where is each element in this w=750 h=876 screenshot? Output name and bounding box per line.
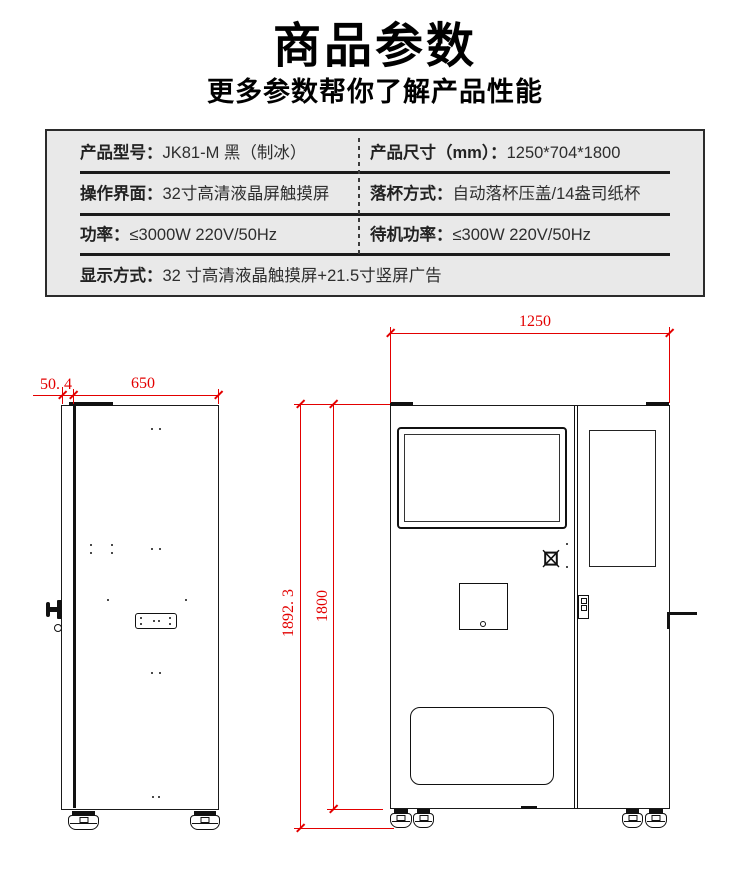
spec-table: 产品型号：JK81-M 黑（制冰） 产品尺寸（mm）：1250*704*1800…: [45, 129, 705, 297]
dispense-nozzle: [480, 621, 486, 627]
page-subtitle: 更多参数帮你了解产品性能: [0, 70, 750, 109]
base-notch: [521, 806, 537, 809]
spec-cup-drop: 落杯方式：自动落杯压盖/14盎司纸杯: [370, 180, 640, 204]
spec-value: 32 寸高清液晶触摸屏+21.5寸竖屏广告: [163, 267, 442, 285]
spec-value: 自动落杯压盖/14盎司纸杯: [453, 185, 641, 203]
row-divider: [80, 213, 670, 216]
column-divider-dashed: [358, 138, 360, 255]
screw-dot: [153, 620, 155, 622]
table-row: 功率：≤3000W 220V/50Hz 待机功率：≤300W 220V/50Hz: [47, 213, 703, 253]
product-parameters-page: 商品参数 更多参数帮你了解产品性能 产品型号：JK81-M 黑（制冰） 产品尺寸…: [0, 0, 750, 876]
table-row: 显示方式：32 寸高清液晶触摸屏+21.5寸竖屏广告: [47, 253, 703, 295]
dim-overall-height: 1892. 3: [281, 578, 297, 648]
front-top-cap-right: [646, 402, 669, 406]
side-cabinet-outline: [61, 405, 219, 810]
dimension-line: [300, 404, 301, 828]
spec-display: 显示方式：32 寸高清液晶触摸屏+21.5寸竖屏广告: [80, 262, 442, 286]
screw-dot: [169, 623, 171, 625]
side-handle-plate: [135, 613, 177, 629]
spec-label: 功率：: [80, 226, 130, 244]
spec-label: 落杯方式：: [370, 185, 453, 203]
side-door-edge-line: [73, 406, 76, 808]
front-top-cap-left: [390, 402, 413, 406]
extension-line: [390, 327, 391, 403]
spec-label: 显示方式：: [80, 267, 163, 285]
dimension-end-line: [294, 828, 394, 829]
page-title: 商品参数: [0, 6, 750, 76]
dimension-line: [333, 404, 334, 809]
door-lock-knob: [54, 624, 62, 632]
payment-module-icon: [542, 549, 560, 568]
caster-wheel: [413, 809, 434, 828]
caster-wheel: [645, 809, 667, 828]
table-row: 产品型号：JK81-M 黑（制冰） 产品尺寸（mm）：1250*704*1800: [47, 131, 703, 171]
spec-value: ≤300W 220V/50Hz: [453, 226, 591, 244]
screw-dot: [169, 617, 171, 619]
dispense-window: [459, 583, 508, 630]
extension-line: [294, 404, 390, 405]
screw-dot: [158, 620, 160, 622]
caster-wheel: [622, 809, 643, 828]
extension-line: [669, 327, 670, 403]
spec-value: 32寸高清液晶屏触摸屏: [163, 185, 330, 203]
spec-model: 产品型号：JK81-M 黑（制冰）: [80, 139, 370, 163]
caster-wheel: [190, 811, 220, 830]
spec-label: 产品尺寸（mm）：: [370, 144, 507, 162]
spec-label: 待机功率：: [370, 226, 453, 244]
dim-overall-width: 1250: [505, 314, 565, 330]
dim-body-depth: 650: [131, 376, 155, 392]
vertical-ad-screen: [589, 430, 656, 567]
right-handle-bar: [669, 612, 697, 615]
dim-door-offset: 50. 4: [40, 377, 72, 393]
main-screen-inner-bezel: [404, 434, 560, 522]
dimension-end-line: [327, 809, 383, 810]
side-top-cap: [69, 402, 113, 406]
door-handle-bar: [46, 602, 50, 617]
row-divider: [80, 253, 670, 256]
door-handle-stem: [49, 607, 58, 612]
caster-wheel: [68, 811, 99, 830]
spec-value: JK81-M 黑（制冰）: [163, 144, 307, 162]
spec-label: 操作界面：: [80, 185, 163, 203]
screw-dot: [140, 617, 142, 619]
caster-wheel: [390, 809, 412, 828]
table-row: 操作界面：32寸高清液晶屏触摸屏 落杯方式：自动落杯压盖/14盎司纸杯: [47, 171, 703, 213]
pickup-door: [410, 707, 554, 785]
dim-cabinet-height: 1800: [315, 582, 331, 630]
spec-standby-power: 待机功率：≤300W 220V/50Hz: [370, 221, 591, 245]
door-lock: [578, 595, 589, 619]
dimension-line: [390, 333, 669, 334]
spec-value: 1250*704*1800: [507, 144, 621, 162]
screw-dot: [140, 623, 142, 625]
row-divider: [80, 171, 670, 174]
spec-size: 产品尺寸（mm）：1250*704*1800: [370, 139, 620, 163]
spec-power: 功率：≤3000W 220V/50Hz: [80, 221, 370, 245]
spec-value: ≤3000W 220V/50Hz: [130, 226, 278, 244]
spec-interface: 操作界面：32寸高清液晶屏触摸屏: [80, 180, 370, 204]
spec-label: 产品型号：: [80, 144, 163, 162]
